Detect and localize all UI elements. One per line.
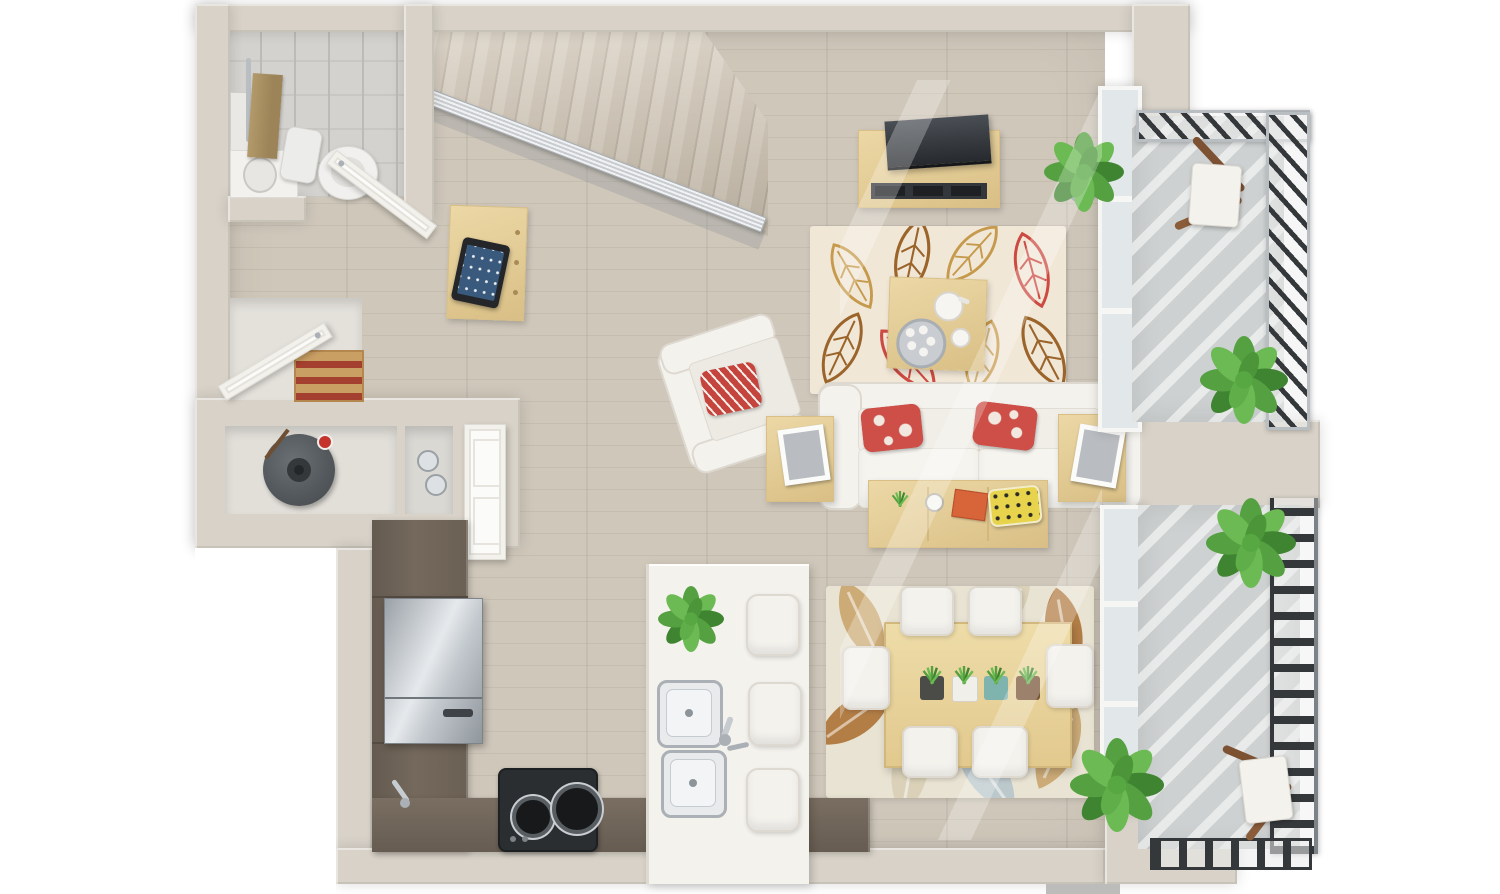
dining-chair [902, 726, 958, 778]
chair-cushion [1188, 163, 1242, 228]
media-component [875, 186, 905, 196]
wall-bathroom-bottom [228, 196, 306, 222]
glassware [417, 450, 439, 472]
refrigerator [384, 598, 483, 744]
door-knob [314, 331, 322, 339]
chair-cushion [1238, 755, 1293, 824]
dresser-knob [514, 260, 519, 265]
burner [512, 796, 554, 838]
door-knob [337, 159, 345, 167]
teacup [950, 327, 971, 348]
display-niche-interior [405, 426, 453, 514]
flower-sprig [885, 491, 915, 519]
sofa-red-pillow [972, 400, 1039, 451]
dining-corner-plant [1070, 738, 1164, 832]
island-plant [658, 586, 724, 652]
sofa-red-pillow [860, 403, 924, 453]
planter-grass [980, 666, 1012, 698]
utility-closet-interior [225, 426, 397, 514]
orange-book [951, 489, 989, 521]
fridge-handle [443, 709, 473, 717]
glassware [425, 474, 447, 496]
dresser-knob [515, 230, 520, 235]
sink-drain [689, 779, 697, 787]
dining-chair [968, 586, 1022, 636]
picture-frame [1070, 423, 1125, 488]
water-heater [263, 434, 335, 506]
console-table [868, 480, 1048, 548]
balcony-lower-plant [1206, 498, 1296, 588]
dining-chair [842, 646, 890, 710]
tablet [451, 236, 511, 309]
island-faucet-base [719, 734, 731, 746]
tablet-screen [457, 244, 505, 301]
exterior-step-mat [1046, 884, 1120, 894]
island-sink-lower [661, 750, 727, 818]
vanity-sink-bowl [243, 157, 277, 193]
dresser-knob [513, 290, 518, 295]
cooktop-knob [510, 836, 516, 842]
corner-faucet-base [400, 798, 410, 808]
cooktop-knob [522, 836, 528, 842]
heater-valve [317, 434, 333, 450]
living-plant [1044, 132, 1124, 212]
shoe-cubby [294, 350, 364, 402]
island-sink-upper [657, 680, 723, 748]
yellow-polkadot-pillow [987, 484, 1043, 527]
balcony-upper-plant [1200, 336, 1288, 424]
towel [247, 73, 283, 159]
bar-stool [746, 768, 800, 832]
side-table-left [766, 416, 834, 502]
wall-kitchen-left [336, 548, 372, 850]
dining-chair [972, 726, 1028, 778]
kitchen-door-against-wall [464, 424, 506, 560]
flat-screen-tv [884, 114, 991, 170]
media-component [913, 186, 943, 196]
hall-dresser [446, 205, 528, 322]
wall-bathroom-right [404, 4, 434, 222]
island-faucet-handle [727, 742, 750, 751]
exterior-left [195, 548, 336, 894]
coffee-table [886, 276, 987, 371]
serving-tray [895, 318, 947, 370]
dining-chair [1046, 644, 1094, 708]
bar-stool [748, 682, 802, 746]
planter-grass [916, 666, 948, 698]
burner [552, 784, 602, 834]
bar-stool [746, 594, 800, 656]
tv-console-shelf [871, 183, 987, 199]
sink-drain [685, 709, 693, 717]
wall-top [195, 4, 1190, 32]
media-component [951, 186, 981, 196]
floor-plan-render [0, 0, 1500, 894]
balcony-upper-bistro-chair [1159, 139, 1269, 252]
coffee-cup [925, 493, 944, 512]
planter-grass [1012, 666, 1044, 698]
picture-frame [777, 424, 830, 486]
heater-pipe [264, 429, 289, 460]
cooktop [498, 768, 598, 852]
planter-grass [948, 666, 980, 698]
balcony-lower-railing-bottom [1150, 838, 1312, 870]
water-heater-cap [287, 458, 311, 482]
dining-chair [900, 586, 954, 636]
